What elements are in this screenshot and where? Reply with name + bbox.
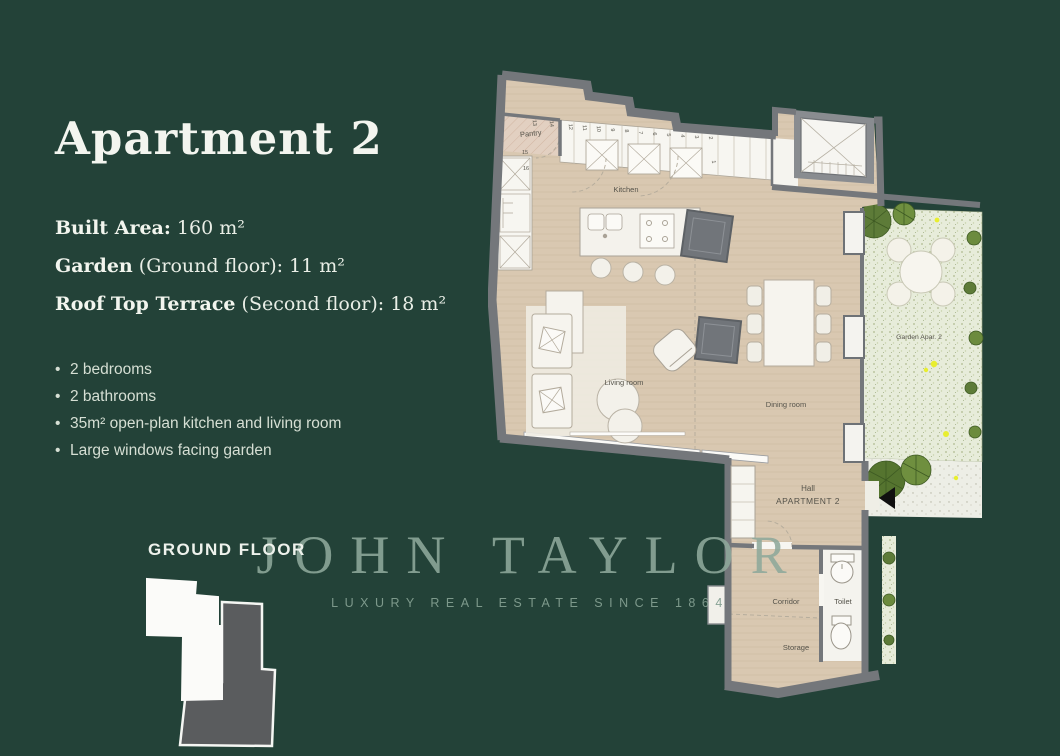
svg-text:10: 10 (595, 126, 601, 133)
room-label-corridor: Corridor (772, 597, 800, 606)
svg-text:12: 12 (567, 124, 573, 131)
brochure-page: { "page": { "background": "#234238" }, "… (0, 0, 1060, 756)
room-label-storage: Storage (783, 643, 809, 652)
feature-item: 2 bathrooms (55, 388, 485, 406)
svg-text:14: 14 (548, 121, 554, 128)
garden-area (856, 203, 983, 664)
room-label-hall: Hall (801, 484, 815, 493)
spec-roof-terrace-label: Roof Top Terrace (55, 293, 236, 315)
svg-text:4: 4 (679, 134, 685, 137)
floor-plan: Pantry Kitchen Living room Dining room G… (488, 58, 988, 708)
spec-roof-terrace: Roof Top Terrace (Second floor): 18 m² (55, 293, 485, 315)
spec-roof-terrace-value: (Second floor): 18 m² (236, 293, 447, 315)
svg-text:5: 5 (665, 133, 671, 136)
svg-text:3: 3 (693, 135, 699, 138)
room-label-kitchen: Kitchen (613, 185, 638, 194)
svg-text:1: 1 (710, 160, 716, 163)
lift (794, 110, 874, 184)
thumbnail-apartment-footprint (147, 579, 222, 700)
column-block (695, 317, 741, 363)
feature-item: 35m² open-plan kitchen and living room (55, 415, 485, 433)
svg-text:6: 6 (651, 132, 657, 135)
hall-wardrobe (731, 466, 755, 538)
svg-text:13: 13 (531, 120, 537, 127)
page-title: Apartment 2 (55, 112, 485, 165)
svg-text:9: 9 (609, 128, 615, 131)
svg-text:8: 8 (623, 129, 629, 132)
room-label-living: Living room (605, 378, 644, 387)
feature-item: Large windows facing garden (55, 442, 485, 460)
spec-built-area-label: Built Area: (55, 217, 171, 239)
floor-label: GROUND FLOOR (148, 540, 306, 560)
dining-furniture (747, 280, 831, 366)
spec-built-area: Built Area: 160 m² (55, 217, 485, 239)
spec-garden-value: (Ground floor): 11 m² (133, 255, 345, 277)
spec-garden: Garden (Ground floor): 11 m² (55, 255, 485, 277)
svg-text:16: 16 (523, 166, 529, 172)
svg-text:2: 2 (707, 136, 713, 139)
property-summary-panel: Apartment 2 Built Area: 160 m² Garden (G… (55, 112, 485, 469)
spec-built-area-value: 160 m² (171, 217, 245, 239)
room-label-garden: Garden Apar. 2 (896, 334, 942, 341)
area-specs: Built Area: 160 m² Garden (Ground floor)… (55, 217, 485, 315)
svg-text:15: 15 (522, 150, 528, 156)
svg-text:7: 7 (637, 131, 643, 134)
spec-garden-label: Garden (55, 255, 133, 277)
room-label-toilet: Toilet (834, 597, 852, 606)
svg-text:11: 11 (581, 125, 587, 131)
entrance-threshold (865, 481, 879, 510)
room-label-dining: Dining room (766, 400, 806, 409)
feature-list: 2 bedrooms 2 bathrooms 35m² open-plan ki… (55, 361, 485, 460)
room-label-hall-apartment: APARTMENT 2 (776, 496, 840, 506)
feature-item: 2 bedrooms (55, 361, 485, 379)
garden-wall-windows (844, 212, 864, 462)
column-block (681, 210, 733, 262)
ground-floor-thumbnail (135, 562, 305, 756)
